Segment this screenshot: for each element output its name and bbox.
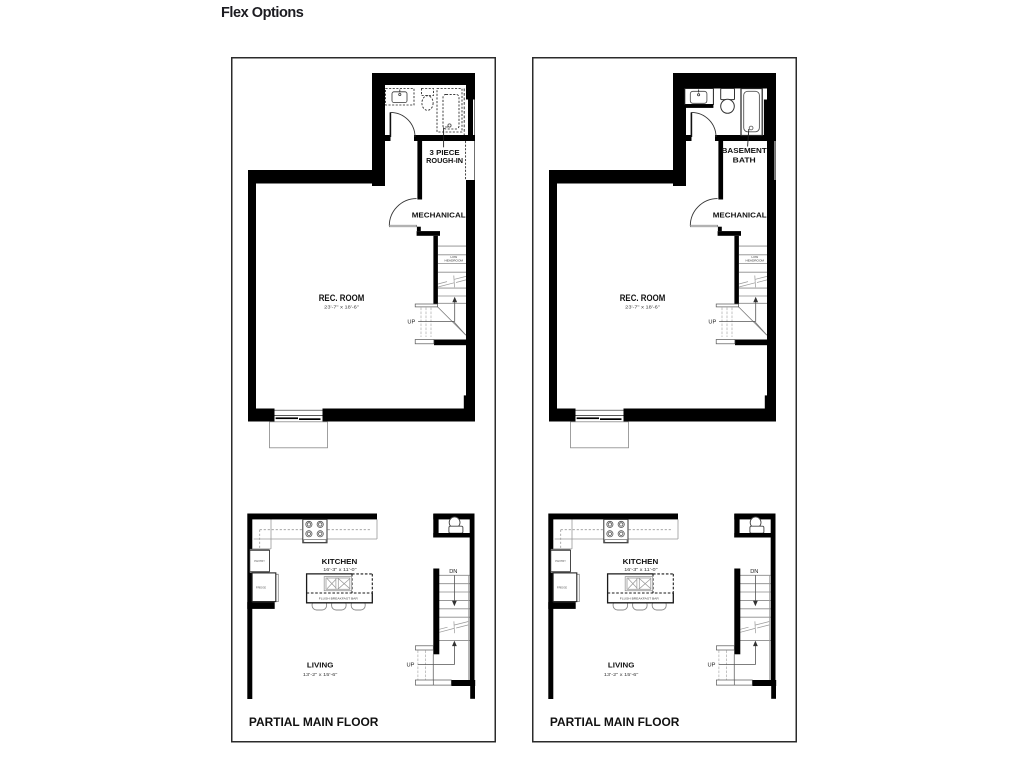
svg-text:ROUGH-IN: ROUGH-IN [426, 158, 463, 165]
svg-text:3 PIECE: 3 PIECE [430, 150, 460, 157]
svg-text:BASEMENT: BASEMENT [722, 148, 768, 155]
svg-text:BATH: BATH [733, 157, 756, 164]
